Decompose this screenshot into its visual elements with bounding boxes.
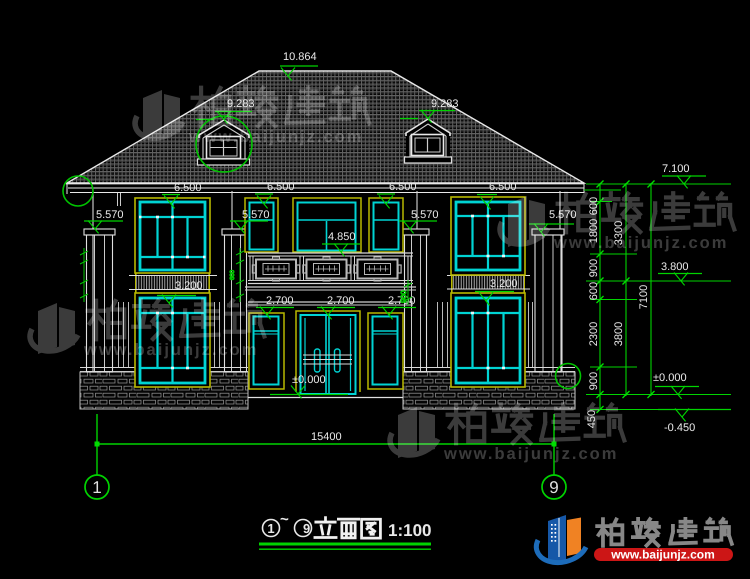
svg-text:600: 600 bbox=[229, 269, 236, 280]
svg-text:9.283: 9.283 bbox=[431, 98, 459, 110]
svg-text:www.baijunjz.com: www.baijunjz.com bbox=[610, 548, 715, 562]
svg-text:900: 900 bbox=[399, 290, 408, 303]
svg-text:3.200: 3.200 bbox=[175, 280, 203, 292]
svg-text:±0.000: ±0.000 bbox=[292, 374, 326, 386]
svg-text:3.200: 3.200 bbox=[490, 278, 518, 290]
svg-text:9: 9 bbox=[303, 521, 310, 536]
svg-text:6.500: 6.500 bbox=[267, 181, 295, 193]
svg-text:900: 900 bbox=[588, 372, 600, 390]
svg-text:-0.450: -0.450 bbox=[664, 422, 695, 434]
svg-text:1: 1 bbox=[92, 478, 101, 497]
svg-text:2.700: 2.700 bbox=[327, 295, 355, 307]
svg-text:6.500: 6.500 bbox=[489, 181, 517, 193]
svg-text:3.800: 3.800 bbox=[661, 261, 689, 273]
svg-text:7100: 7100 bbox=[638, 285, 650, 309]
svg-text:5.570: 5.570 bbox=[411, 209, 439, 221]
svg-text:7.100: 7.100 bbox=[662, 163, 690, 175]
svg-text:5.570: 5.570 bbox=[242, 209, 270, 221]
svg-text:15400: 15400 bbox=[311, 431, 342, 443]
svg-text:9: 9 bbox=[549, 478, 558, 497]
svg-text:1: 1 bbox=[267, 521, 274, 536]
svg-text:1:100: 1:100 bbox=[388, 521, 431, 540]
svg-text:6.500: 6.500 bbox=[174, 182, 202, 194]
svg-text:900: 900 bbox=[588, 259, 600, 277]
svg-text:10.864: 10.864 bbox=[283, 51, 317, 63]
svg-text:4.850: 4.850 bbox=[328, 231, 356, 243]
svg-text:~: ~ bbox=[280, 511, 289, 528]
svg-text:3800: 3800 bbox=[613, 322, 625, 346]
svg-text:±0.000: ±0.000 bbox=[653, 372, 687, 384]
svg-text:2.700: 2.700 bbox=[266, 295, 294, 307]
svg-text:2300: 2300 bbox=[588, 322, 600, 346]
svg-text:6.500: 6.500 bbox=[389, 181, 417, 193]
svg-text:600: 600 bbox=[588, 282, 600, 300]
svg-text:5.570: 5.570 bbox=[96, 209, 124, 221]
